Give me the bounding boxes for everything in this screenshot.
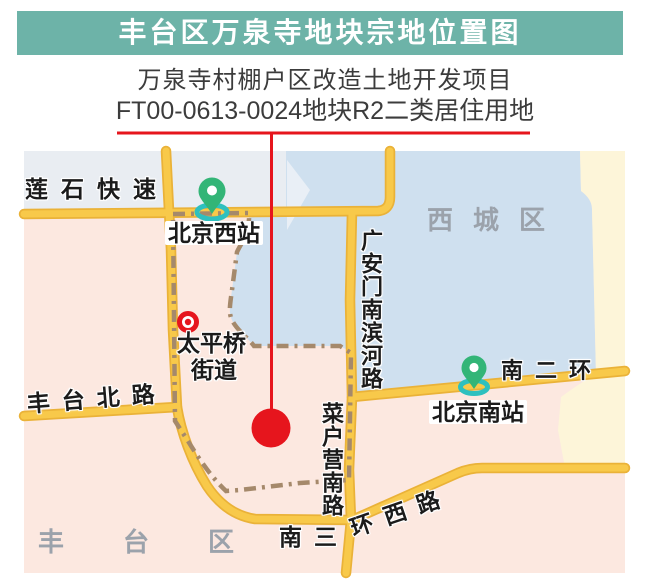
infographic: 丰台区万泉寺地块宗地位置图 万泉寺村棚户区改造土地开发项目 FT00-0613-… <box>0 0 667 587</box>
parcel-location-dot <box>252 409 291 448</box>
taipingqiao-dot-icon <box>185 319 191 325</box>
location-map <box>0 0 667 587</box>
taipingqiao-marker <box>180 314 197 331</box>
region-north-grayblue <box>24 151 286 215</box>
